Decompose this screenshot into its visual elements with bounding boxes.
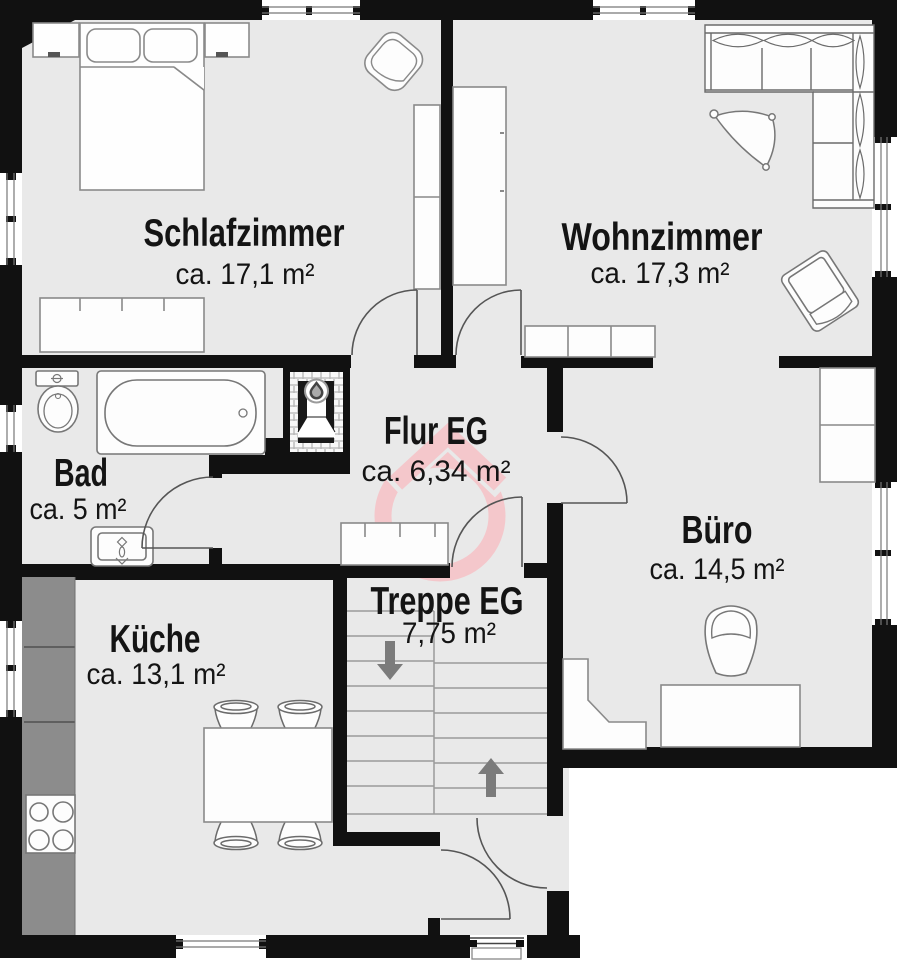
svg-text:Flur EG: Flur EG <box>384 410 488 453</box>
svg-text:Schlafzimmer: Schlafzimmer <box>144 212 345 255</box>
svg-text:7,75 m²: 7,75 m² <box>402 617 496 650</box>
svg-text:ca. 14,5 m²: ca. 14,5 m² <box>650 553 785 586</box>
svg-text:ca. 13,1 m²: ca. 13,1 m² <box>87 658 226 691</box>
svg-text:ca. 17,1 m²: ca. 17,1 m² <box>176 258 315 291</box>
svg-text:Bad: Bad <box>54 452 108 495</box>
svg-text:Büro: Büro <box>682 509 753 552</box>
svg-text:ca. 6,34 m²: ca. 6,34 m² <box>362 455 511 488</box>
svg-text:Küche: Küche <box>110 618 201 661</box>
svg-text:ca. 17,3 m²: ca. 17,3 m² <box>591 257 730 290</box>
svg-text:Wohnzimmer: Wohnzimmer <box>562 216 763 259</box>
svg-text:ca. 5 m²: ca. 5 m² <box>30 493 127 526</box>
